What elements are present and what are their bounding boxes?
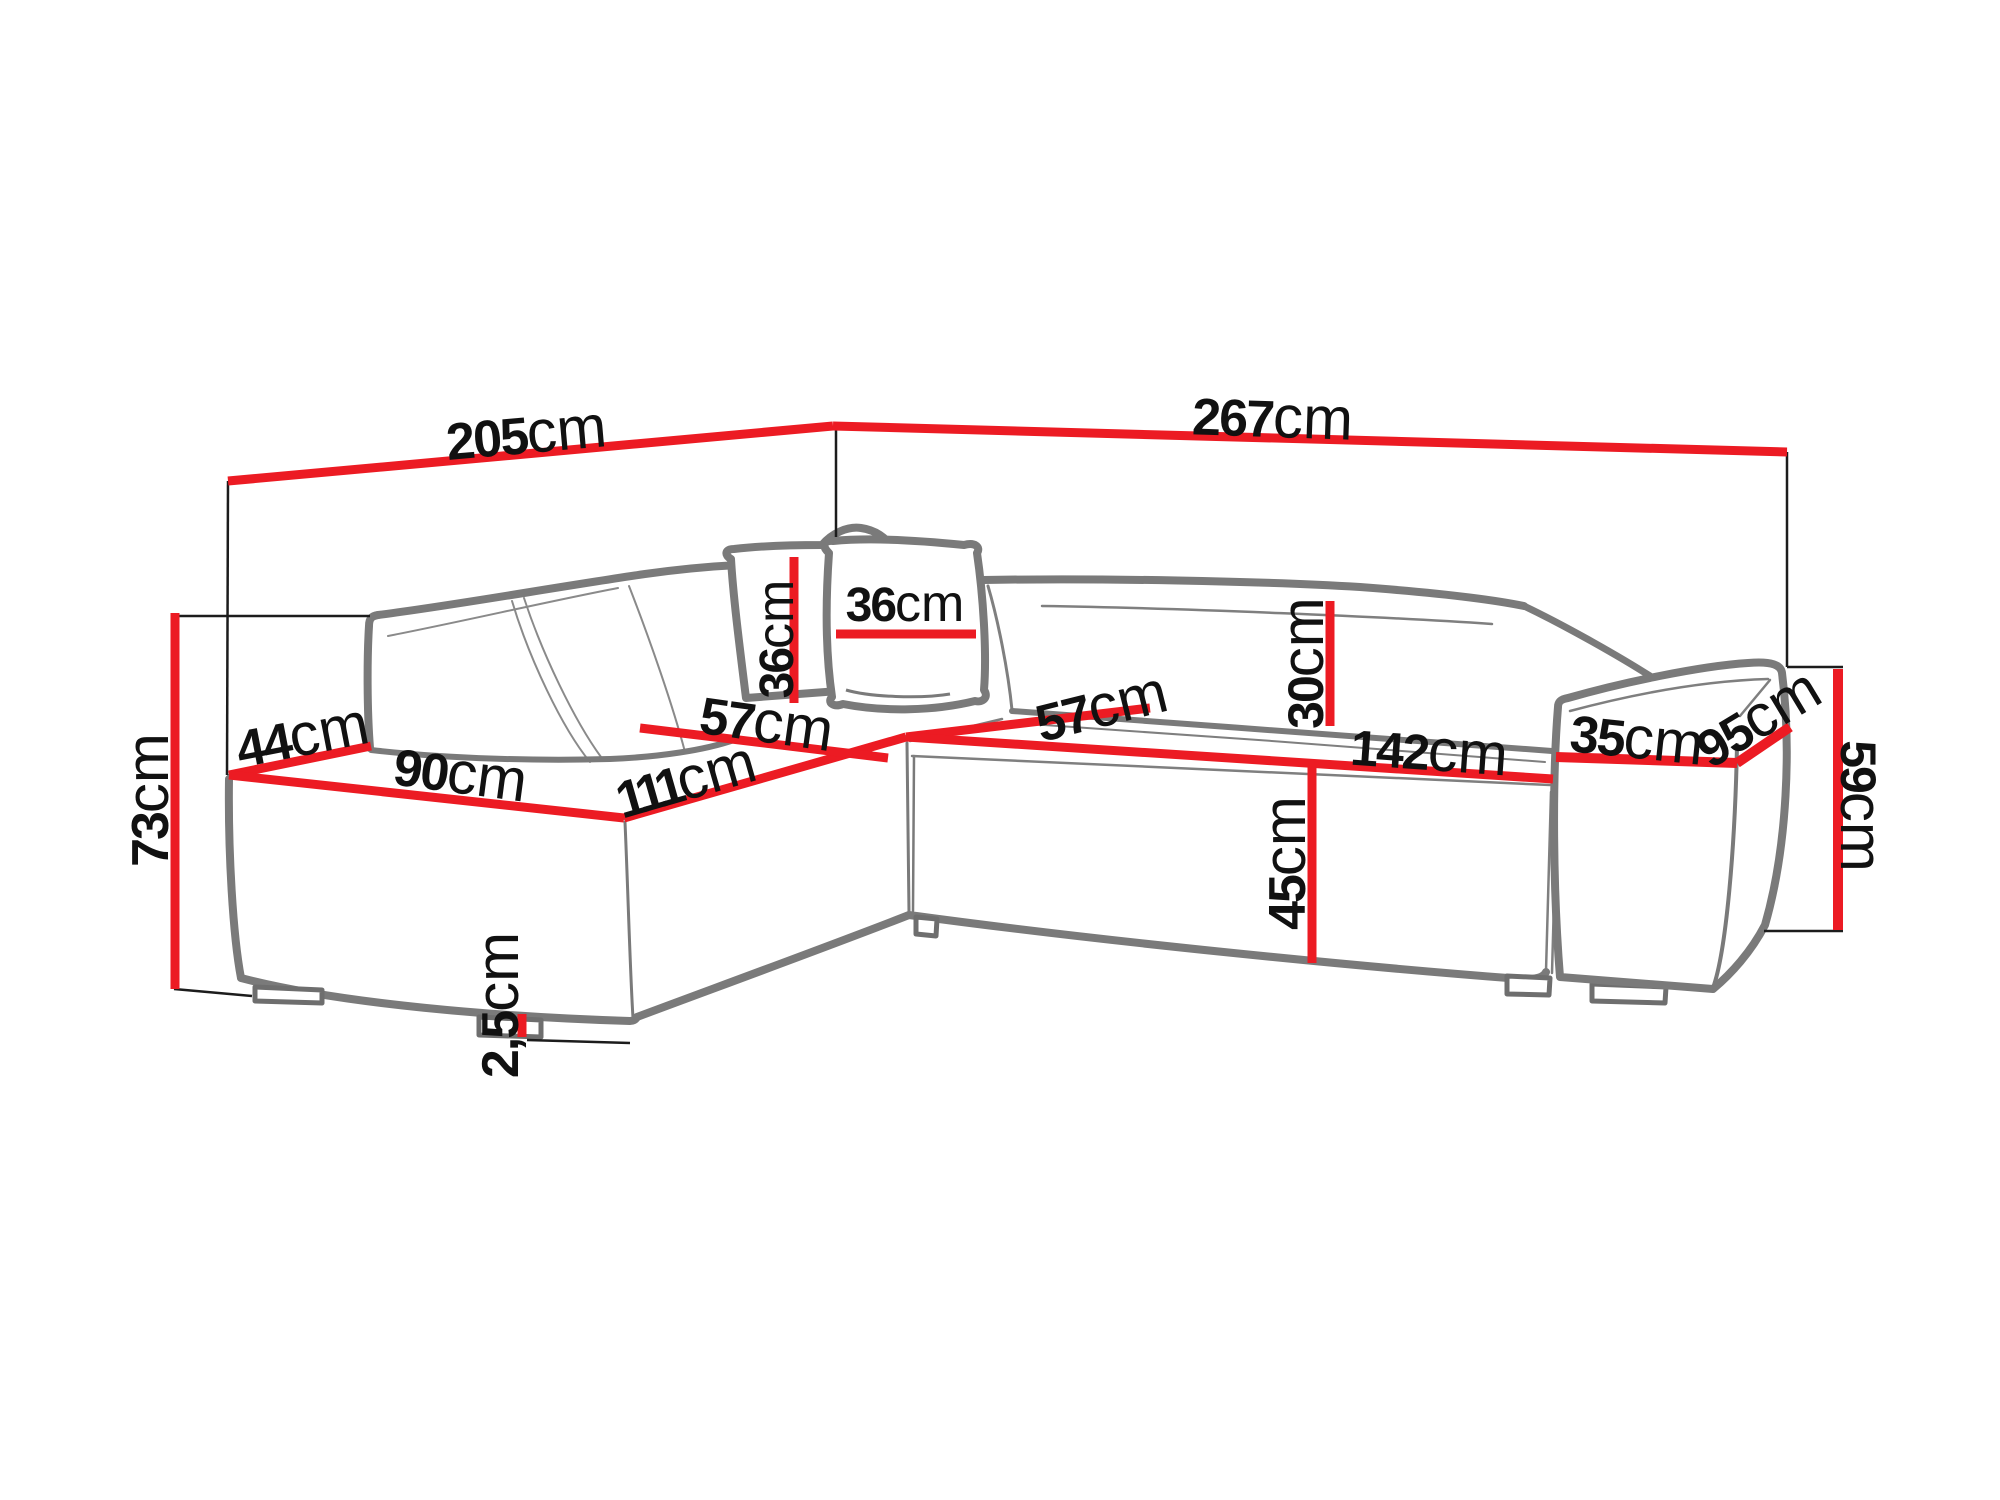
svg-text:36cm: 36cm (846, 575, 965, 633)
svg-text:73cm: 73cm (114, 733, 181, 867)
svg-text:30cm: 30cm (1269, 597, 1336, 729)
svg-text:59cm: 59cm (1828, 740, 1895, 872)
svg-text:45cm: 45cm (1251, 796, 1318, 930)
svg-text:267cm: 267cm (1191, 380, 1354, 453)
svg-text:142cm: 142cm (1349, 711, 1511, 789)
svg-text:36cm: 36cm (747, 580, 805, 699)
svg-text:2,5cm: 2,5cm (464, 932, 531, 1078)
